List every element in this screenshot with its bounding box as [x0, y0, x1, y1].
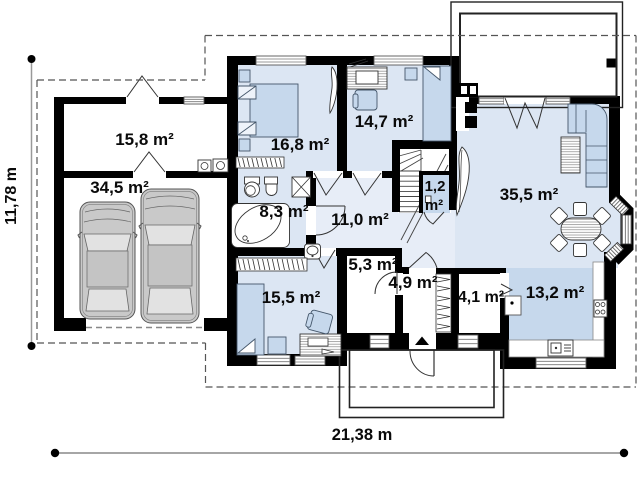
svg-text:15,8 m²: 15,8 m² — [115, 130, 174, 149]
svg-text:11,0 m²: 11,0 m² — [331, 210, 389, 229]
svg-text:4,1 m²: 4,1 m² — [458, 289, 504, 306]
svg-text:15,5 m²: 15,5 m² — [262, 288, 321, 307]
svg-text:34,5 m²: 34,5 m² — [90, 178, 149, 197]
svg-text:4,9 m²: 4,9 m² — [388, 273, 437, 292]
svg-text:11,78 m: 11,78 m — [3, 167, 20, 225]
svg-text:1,2: 1,2 — [425, 178, 446, 195]
svg-text:14,7 m²: 14,7 m² — [355, 112, 414, 131]
svg-text:35,5 m²: 35,5 m² — [500, 185, 559, 204]
svg-text:16,8 m²: 16,8 m² — [271, 135, 330, 154]
svg-text:13,2 m²: 13,2 m² — [526, 283, 585, 302]
svg-text:21,38 m: 21,38 m — [332, 426, 393, 444]
svg-text:8,3 m²: 8,3 m² — [259, 202, 308, 221]
svg-text:m²: m² — [425, 197, 443, 214]
svg-text:5,3 m²: 5,3 m² — [348, 255, 397, 274]
